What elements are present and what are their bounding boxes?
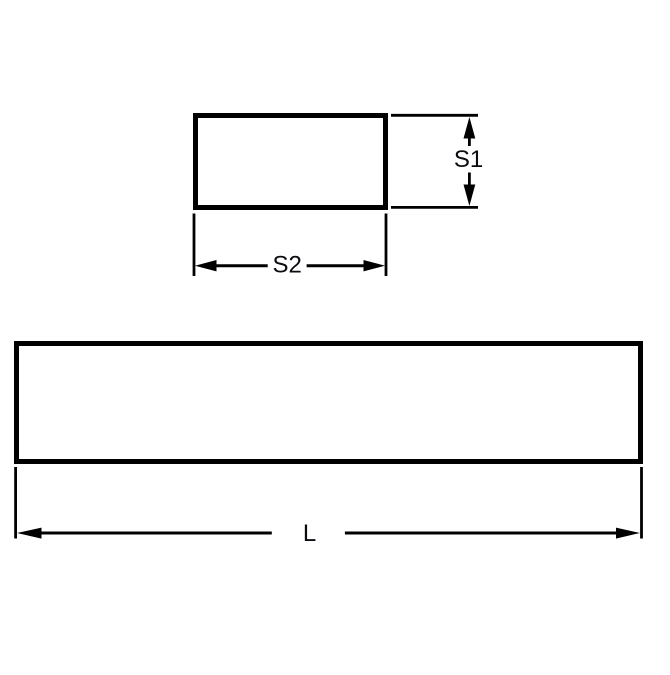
svg-text:L: L (303, 520, 316, 547)
svg-text:S2: S2 (273, 252, 302, 279)
svg-text:S1: S1 (454, 146, 483, 173)
